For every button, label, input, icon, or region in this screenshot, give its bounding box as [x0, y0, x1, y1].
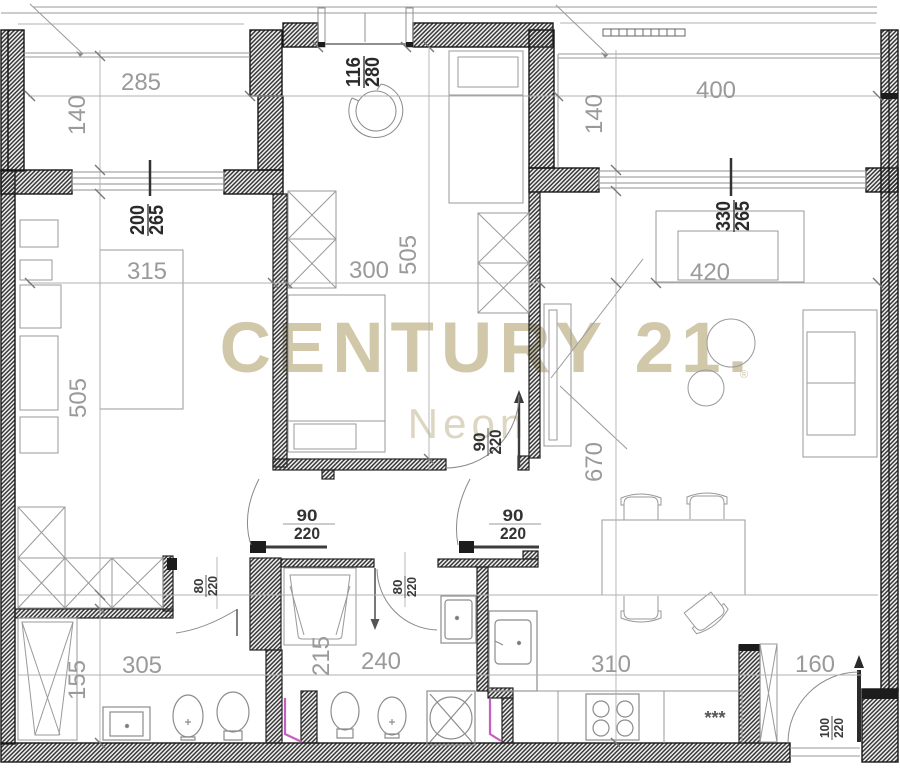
svg-text:310: 310 — [591, 651, 631, 678]
svg-text:220: 220 — [486, 430, 505, 455]
svg-text:265: 265 — [732, 201, 754, 231]
svg-text:280: 280 — [362, 57, 384, 87]
svg-text:670: 670 — [581, 442, 608, 482]
svg-text:505: 505 — [65, 378, 92, 418]
svg-text:80: 80 — [191, 579, 206, 594]
svg-text:400: 400 — [696, 77, 736, 104]
svg-text:®: ® — [740, 369, 748, 381]
svg-text:220: 220 — [500, 524, 526, 543]
svg-text:215: 215 — [308, 636, 335, 676]
svg-text:505: 505 — [395, 235, 422, 275]
svg-text:300: 300 — [349, 257, 389, 284]
svg-text:265: 265 — [146, 205, 168, 235]
svg-text:140: 140 — [581, 94, 608, 134]
svg-text:160: 160 — [795, 651, 835, 678]
svg-text:305: 305 — [122, 652, 162, 679]
svg-text:220: 220 — [831, 718, 846, 738]
svg-text:240: 240 — [361, 648, 401, 675]
svg-text:220: 220 — [404, 577, 419, 597]
svg-text:90: 90 — [297, 506, 318, 525]
svg-text:315: 315 — [127, 258, 167, 285]
svg-text:CENTURY 21.: CENTURY 21. — [220, 309, 755, 388]
svg-text:140: 140 — [64, 95, 91, 135]
svg-text:220: 220 — [294, 524, 320, 543]
svg-text:285: 285 — [121, 69, 161, 96]
svg-text:420: 420 — [690, 259, 730, 286]
svg-text:Neon: Neon — [408, 400, 528, 447]
svg-text:100: 100 — [817, 718, 832, 738]
svg-text:***: *** — [704, 708, 725, 728]
svg-text:90: 90 — [503, 506, 524, 525]
svg-text:80: 80 — [390, 580, 405, 595]
svg-text:155: 155 — [64, 660, 91, 700]
svg-text:220: 220 — [205, 576, 220, 596]
